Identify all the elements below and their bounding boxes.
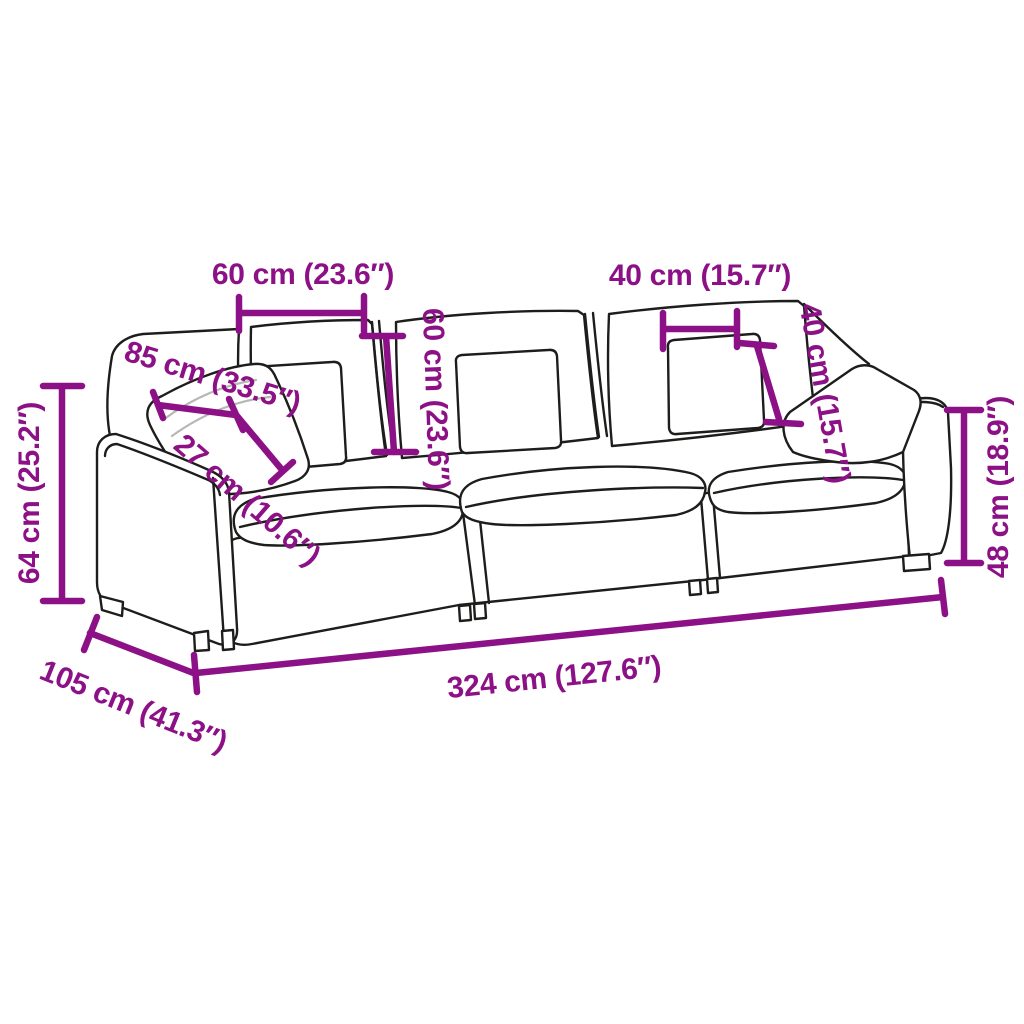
sofa-leg	[459, 605, 471, 621]
dim-armrest-height: 48 cm (18.9″)	[947, 396, 1015, 578]
sofa-leg	[474, 603, 486, 619]
dim-total-height: 64 cm (25.2″)	[13, 386, 82, 601]
sofa-leg	[689, 580, 701, 595]
sofa-leg	[194, 631, 209, 651]
dim-total-height-line	[43, 386, 82, 601]
dim-back-cushion-width-label: 60 cm (23.6″)	[212, 258, 394, 291]
sofa-leg	[903, 554, 930, 571]
sofa-leg	[222, 630, 234, 650]
dim-armrest-height-label: 48 cm (18.9″)	[982, 396, 1015, 578]
dim-backrest-cushion-height-label: 60 cm (23.6″)	[416, 307, 455, 490]
diagram-svg: 60 cm (23.6″) 40 cm (15.7″) 60 cm (23.6″…	[0, 0, 1024, 1024]
throw-pillow-2	[456, 350, 561, 453]
sofa-leg	[707, 578, 718, 593]
dim-sofa-width-label: 324 cm (127.6″)	[446, 650, 663, 705]
dim-headrest-cushion-width-label: 40 cm (15.7″)	[609, 259, 791, 292]
dim-total-height-label: 64 cm (25.2″)	[13, 402, 46, 584]
seat-cushion-2	[460, 467, 705, 526]
sofa-dimension-diagram: 60 cm (23.6″) 40 cm (15.7″) 60 cm (23.6″…	[0, 0, 1024, 1024]
throw-pillow-3	[668, 334, 764, 434]
